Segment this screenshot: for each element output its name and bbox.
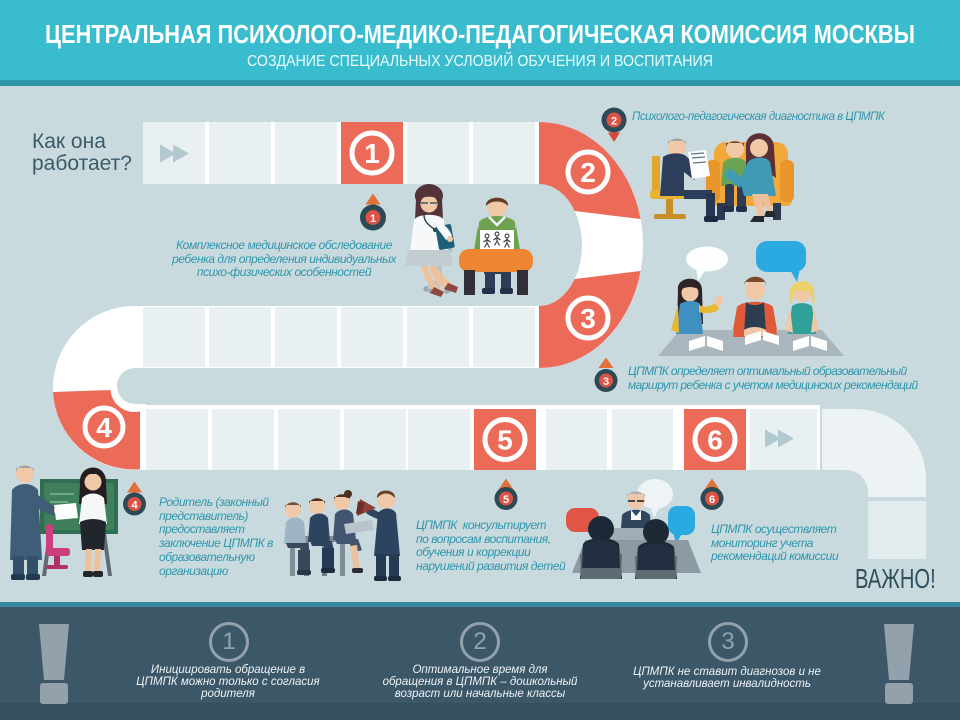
svg-text:1: 1 [364,138,380,169]
svg-text:4: 4 [131,500,138,512]
svg-text:2: 2 [580,157,596,188]
svg-text:2: 2 [611,116,617,128]
svg-text:5: 5 [497,425,513,456]
svg-text:3: 3 [603,376,609,388]
svg-text:5: 5 [503,494,509,506]
svg-text:6: 6 [707,425,723,456]
svg-text:4: 4 [96,412,112,443]
svg-text:6: 6 [709,494,715,506]
svg-text:3: 3 [580,303,596,334]
svg-text:1: 1 [370,213,376,225]
